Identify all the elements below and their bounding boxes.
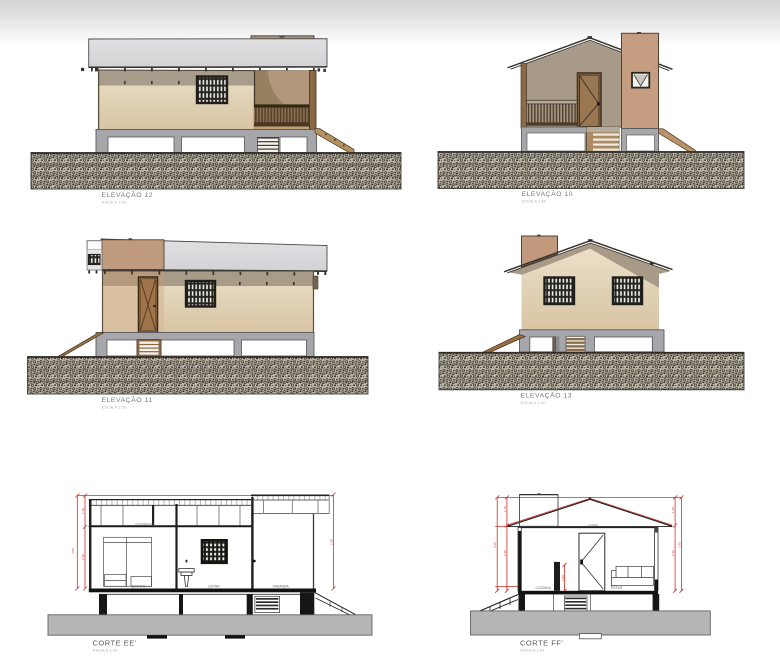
- svg-text:2.60: 2.60: [671, 550, 675, 556]
- svg-text:0.90: 0.90: [561, 575, 565, 581]
- svg-text:ESCALA 1:50: ESCALA 1:50: [93, 649, 117, 653]
- svg-text:1.10: 1.10: [81, 508, 85, 514]
- svg-text:ELEVAÇÃO 11: ELEVAÇÃO 11: [102, 395, 153, 404]
- svg-text:ELEVAÇÃO 12: ELEVAÇÃO 12: [102, 190, 154, 199]
- svg-text:ESCALA 1:50: ESCALA 1:50: [102, 406, 126, 410]
- svg-text:2.60: 2.60: [503, 550, 507, 556]
- svg-text:ESTAR: ESTAR: [209, 585, 221, 589]
- svg-text:4.15: 4.15: [493, 542, 497, 548]
- svg-text:CORREDOR: CORREDOR: [135, 522, 153, 526]
- svg-text:COZINHA: COZINHA: [536, 586, 552, 590]
- svg-text:ESCALA 1:50: ESCALA 1:50: [521, 401, 545, 405]
- svg-text:3.00: 3.00: [71, 548, 75, 554]
- svg-text:2.20: 2.20: [329, 539, 333, 545]
- svg-text:CORTE EE': CORTE EE': [93, 639, 137, 648]
- svg-text:ESCALA 1:50: ESCALA 1:50: [522, 200, 546, 204]
- svg-text:ESCALA 1:50: ESCALA 1:50: [521, 649, 545, 653]
- svg-text:QUARTO: QUARTO: [131, 585, 146, 589]
- svg-text:FORRO: FORRO: [588, 523, 599, 527]
- svg-text:ESTAR: ESTAR: [611, 586, 623, 590]
- svg-text:CORTE FF': CORTE FF': [520, 639, 563, 648]
- svg-text:1.75: 1.75: [503, 506, 507, 512]
- svg-text:ELEVAÇÃO 10: ELEVAÇÃO 10: [522, 189, 574, 198]
- svg-text:1.15: 1.15: [671, 507, 675, 513]
- svg-text:ELEVAÇÃO 13: ELEVAÇÃO 13: [521, 391, 573, 400]
- svg-text:ESCALA 1:50: ESCALA 1:50: [102, 201, 126, 205]
- svg-text:2.40: 2.40: [81, 554, 85, 560]
- svg-text:VARANDA: VARANDA: [273, 585, 290, 589]
- svg-text:3.75: 3.75: [678, 542, 682, 548]
